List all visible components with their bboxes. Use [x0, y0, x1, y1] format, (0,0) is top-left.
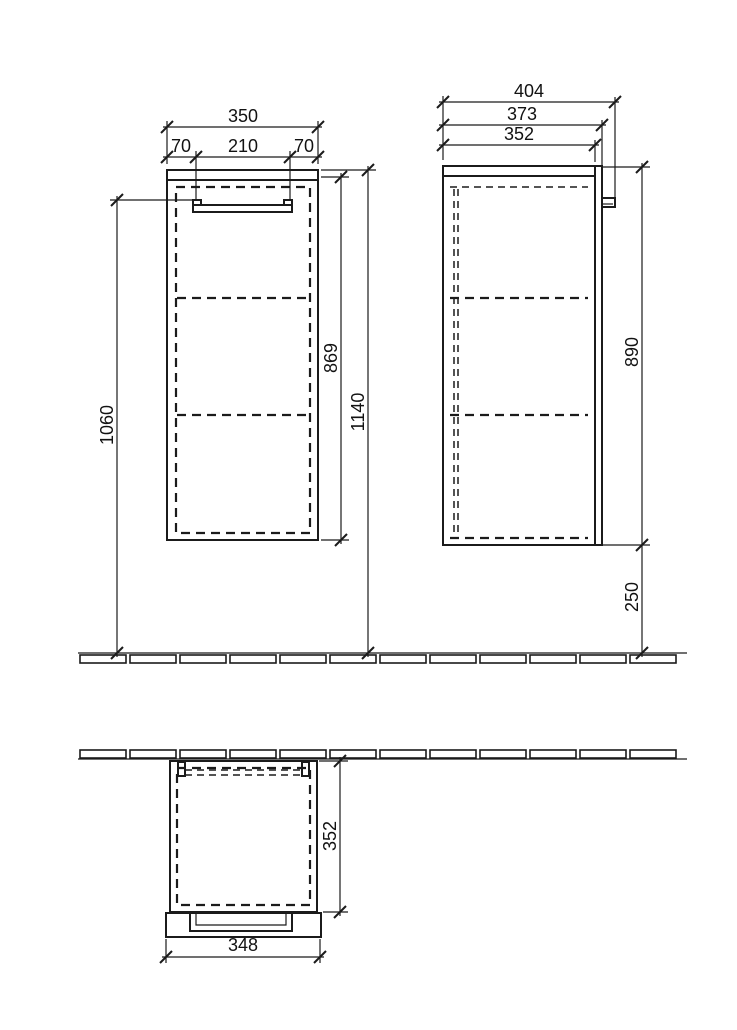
- plan-view: [166, 761, 321, 937]
- dim-label-total-depth: 404: [514, 81, 544, 101]
- dim-label-total-height: 1140: [348, 393, 368, 432]
- dim-plan-door-width: 348: [160, 935, 326, 963]
- dim-label-carcass-depth: 352: [504, 124, 534, 144]
- dim-plan-depth: 352: [319, 755, 348, 918]
- dim-label-carcass-height: 869: [321, 343, 341, 373]
- dim-label-handle-offset-right: 70: [294, 136, 314, 156]
- floor-section-line: [78, 653, 687, 663]
- wall-section-line: [78, 750, 687, 759]
- front-cabinet-outline: [167, 170, 318, 540]
- dim-label-depth-incl-door: 373: [507, 104, 537, 124]
- dim-label-clearance-below: 250: [622, 582, 642, 612]
- dim-label-handle-offset-left: 70: [171, 136, 191, 156]
- dim-total-height: 1140: [321, 164, 376, 659]
- technical-drawing: 350 70 210 70 1060 869 1140: [0, 0, 737, 1030]
- dim-label-handle-width: 210: [228, 136, 258, 156]
- side-cabinet-outline: [443, 166, 595, 545]
- dim-label-cabinet-height: 890: [622, 337, 642, 367]
- dim-handle-height: 1060: [97, 194, 193, 659]
- plan-handle-recess-inner: [196, 913, 286, 925]
- dim-label-front-total-width: 350: [228, 106, 258, 126]
- drawing-canvas: 350 70 210 70 1060 869 1140: [0, 0, 737, 1030]
- side-view: [443, 166, 615, 545]
- plan-hidden-outline: [177, 768, 310, 905]
- front-view: [167, 170, 318, 540]
- front-door-hidden-outline: [176, 187, 310, 533]
- dim-side-depths: 404 373 352: [437, 81, 621, 198]
- plan-handle-recess-outer: [190, 913, 292, 931]
- dim-label-plan-depth: 352: [320, 821, 340, 851]
- front-handle: [193, 200, 292, 212]
- plan-cabinet-outline: [170, 761, 317, 912]
- dim-side-heights: 890 250: [599, 161, 650, 659]
- dim-front-handle-position: 70 210 70: [161, 136, 324, 199]
- side-door-panel: [595, 166, 602, 545]
- side-handle: [602, 198, 615, 207]
- dim-label-door-width: 348: [228, 935, 258, 955]
- dim-carcass-height: 869: [321, 171, 349, 546]
- dim-label-handle-height: 1060: [97, 405, 117, 445]
